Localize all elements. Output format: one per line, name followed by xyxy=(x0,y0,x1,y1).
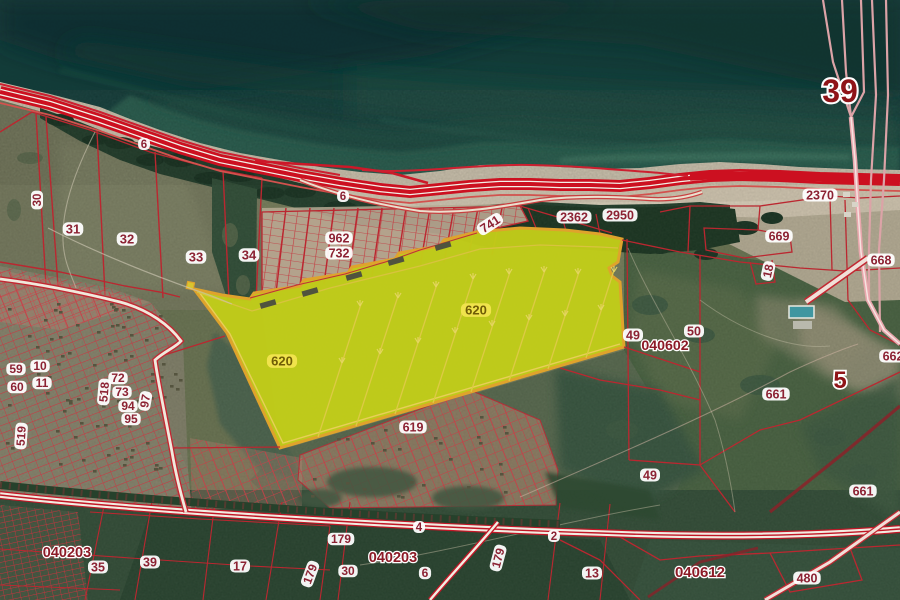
svg-text:6: 6 xyxy=(141,139,147,151)
svg-text:040203: 040203 xyxy=(43,545,91,561)
svg-text:39: 39 xyxy=(143,555,157,569)
svg-text:732: 732 xyxy=(329,246,350,260)
svg-text:35: 35 xyxy=(91,560,105,574)
svg-text:669: 669 xyxy=(769,229,790,243)
svg-text:179: 179 xyxy=(331,532,351,546)
svg-text:518: 518 xyxy=(96,381,112,402)
svg-text:59: 59 xyxy=(9,362,23,376)
svg-text:49: 49 xyxy=(643,468,657,482)
svg-text:668: 668 xyxy=(871,253,892,267)
svg-text:2950: 2950 xyxy=(606,208,634,222)
svg-text:661: 661 xyxy=(766,387,787,401)
svg-text:2370: 2370 xyxy=(806,188,834,202)
svg-text:661: 661 xyxy=(853,484,874,498)
svg-text:040612: 040612 xyxy=(675,564,725,581)
svg-text:519: 519 xyxy=(14,425,29,446)
svg-text:10: 10 xyxy=(33,359,47,373)
svg-text:31: 31 xyxy=(66,222,80,237)
svg-text:33: 33 xyxy=(189,250,203,265)
svg-text:95: 95 xyxy=(124,412,138,426)
svg-text:962: 962 xyxy=(329,231,350,245)
svg-text:97: 97 xyxy=(137,393,153,409)
svg-text:6: 6 xyxy=(340,191,346,203)
svg-text:50: 50 xyxy=(687,324,701,338)
svg-text:17: 17 xyxy=(233,559,247,573)
svg-text:32: 32 xyxy=(120,232,134,247)
svg-text:4: 4 xyxy=(416,522,423,534)
svg-text:72: 72 xyxy=(111,371,125,385)
svg-text:94: 94 xyxy=(121,399,135,413)
svg-text:11: 11 xyxy=(36,376,49,390)
svg-text:040602: 040602 xyxy=(641,338,688,354)
svg-text:2362: 2362 xyxy=(560,210,588,224)
svg-text:480: 480 xyxy=(797,571,818,585)
svg-text:040203: 040203 xyxy=(369,550,417,566)
svg-text:662: 662 xyxy=(883,349,900,363)
svg-text:73: 73 xyxy=(115,385,129,399)
svg-text:5: 5 xyxy=(833,367,846,394)
svg-text:2: 2 xyxy=(551,531,557,543)
svg-text:34: 34 xyxy=(242,248,257,263)
svg-text:13: 13 xyxy=(585,566,599,580)
svg-text:39: 39 xyxy=(822,73,858,109)
svg-text:6: 6 xyxy=(422,566,429,580)
svg-text:49: 49 xyxy=(626,328,640,342)
svg-text:620: 620 xyxy=(271,354,293,369)
svg-text:30: 30 xyxy=(32,194,44,207)
svg-text:60: 60 xyxy=(10,380,24,394)
svg-text:620: 620 xyxy=(465,303,487,318)
svg-text:619: 619 xyxy=(403,420,424,434)
svg-text:30: 30 xyxy=(341,564,355,578)
